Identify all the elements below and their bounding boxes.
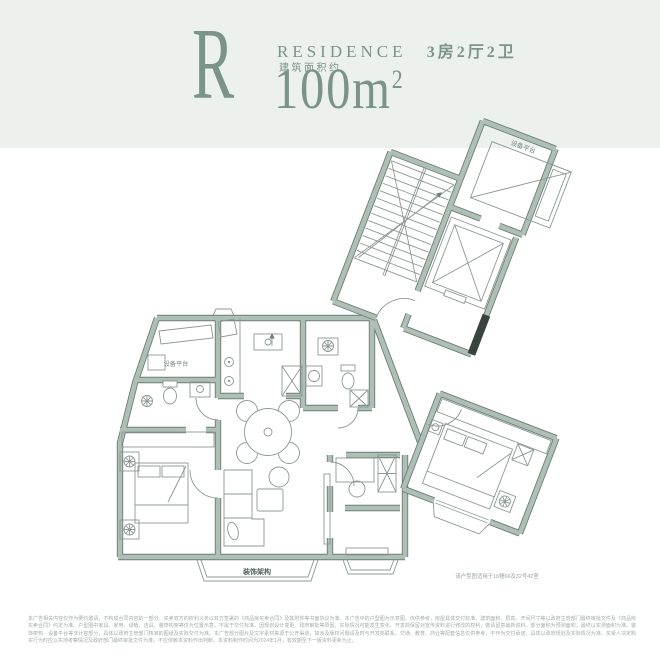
bathroom-1 [142,381,219,420]
poster-page: R RESIDENCE 3房2厅2卫 建筑面积约 100m2 [0,0,660,660]
bathroom-2 [282,338,368,428]
wardrobe-hatch [437,399,551,454]
equipment-platform-left: 设备平台 [148,325,213,370]
desk [336,458,374,482]
coffee-table [257,489,283,511]
bedroom-left [120,432,218,539]
bay-windows [196,309,399,581]
rotated-bedroom [398,393,557,547]
plan-caption: 该户型图适用于16幢66及32号42室 [455,572,539,580]
dining-table [237,401,300,464]
shear-wall [468,314,491,356]
staircase [352,155,456,287]
exhaust-fan-icon [323,341,334,352]
bed-1 [135,463,188,523]
bed-2 [422,423,512,509]
window-lines [119,316,370,559]
lamp-icon [431,423,440,432]
ac-icon [124,524,135,535]
entry-door-arc [376,290,415,329]
living-room [224,462,354,546]
chair [349,481,365,497]
toilet-icon [342,373,354,389]
sofa [224,470,264,546]
disclaimer-text: 本广告相关内容仅作为要约邀请，不构成合同内容的一部分，买卖双方的权利义务以双方签… [28,616,636,646]
shower-icon [142,396,153,407]
equipment-platform-top: 设备平台 [471,131,576,228]
decor-structure-label: 装饰架构 [242,567,271,576]
toilet-icon [164,388,177,404]
kitchen [218,318,282,394]
fan-icon [498,494,512,508]
platform-left-label: 设备平台 [164,360,189,368]
ac-icon [124,456,135,467]
kitchen-sink [254,334,282,350]
wardrobe-hatch [122,432,214,447]
side-table [269,467,289,487]
floorplan-svg: 设备平台 [0,0,660,660]
sink [190,382,210,397]
door-arc [190,470,218,498]
